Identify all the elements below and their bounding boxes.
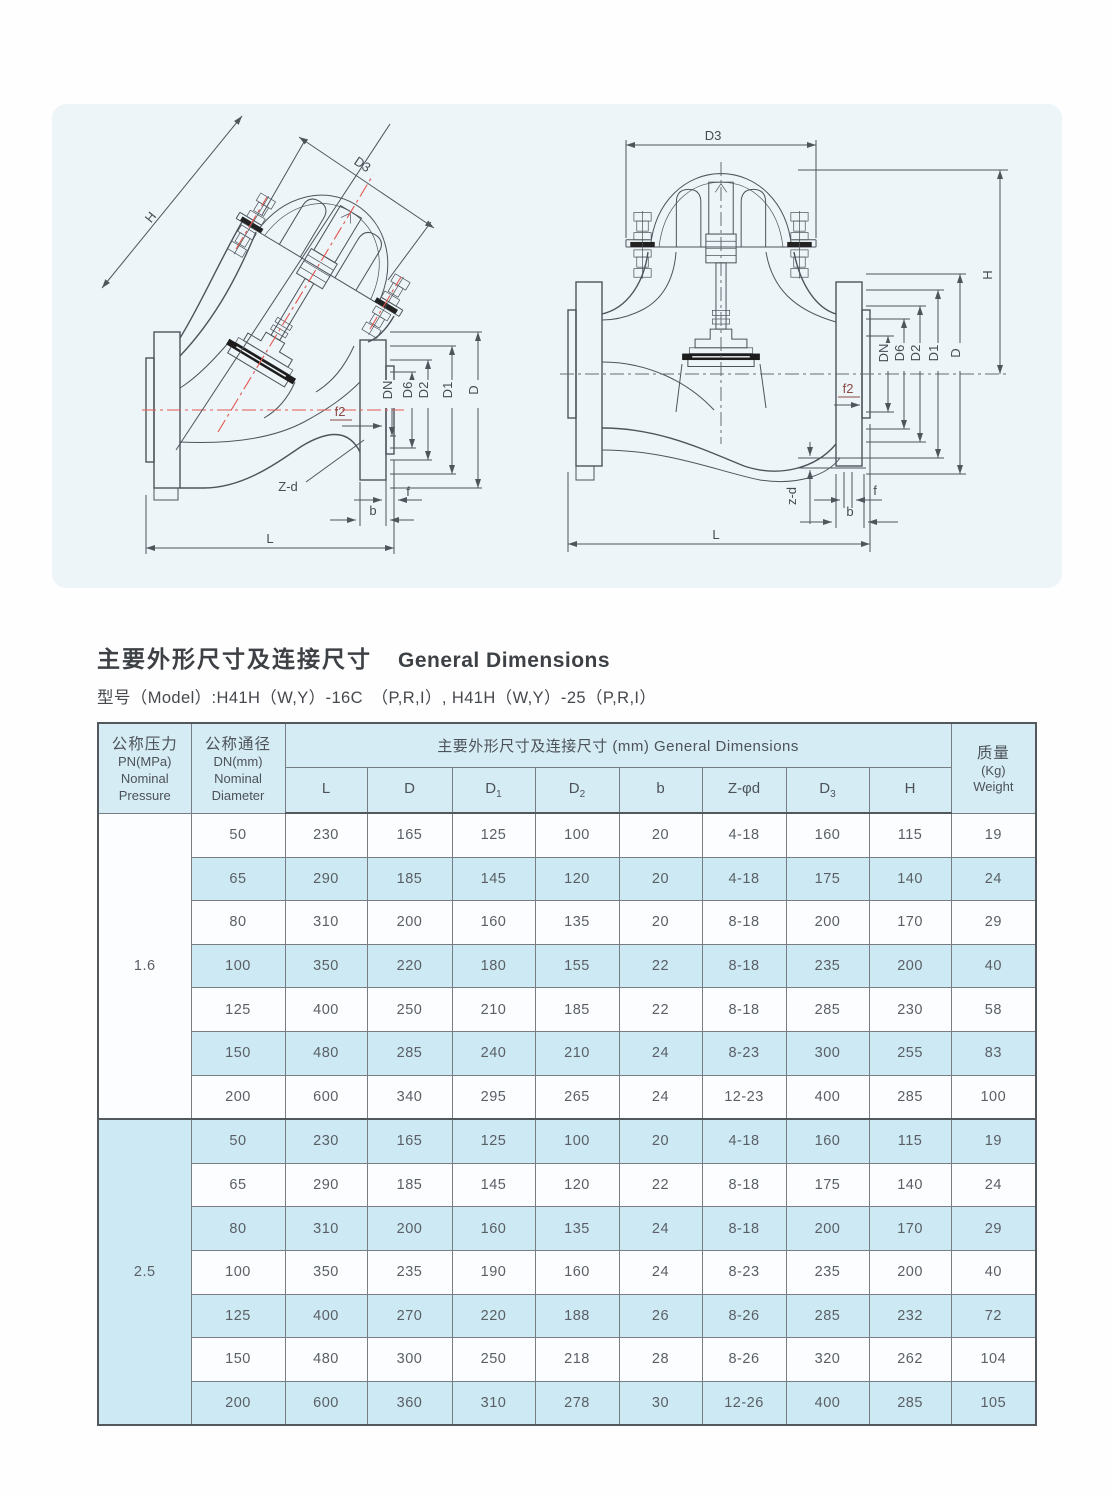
- col-header-H: H: [869, 767, 951, 813]
- dim-cell: 145: [452, 1163, 535, 1207]
- dim-cell: 250: [452, 1338, 535, 1382]
- dim-cell: 310: [285, 901, 367, 945]
- dim-cell: 310: [285, 1207, 367, 1251]
- weight-header-unit: (Kg): [952, 763, 1036, 780]
- weight-cell: 72: [951, 1294, 1036, 1338]
- dim-cell: 160: [786, 813, 869, 857]
- table-row: 2.550230165125100204-1816011519: [98, 1119, 1036, 1163]
- dim-cell: 185: [535, 988, 619, 1032]
- dn-header-zh: 公称通径: [192, 732, 285, 754]
- dim-cell: 8-18: [702, 1163, 786, 1207]
- weight-cell: 29: [951, 1207, 1036, 1251]
- y-valve-drawing: H D3 DN D6 D2 D1 D: [92, 110, 537, 585]
- dim-label-b: b: [369, 503, 376, 518]
- dim-cell: 125: [452, 813, 535, 857]
- dim-cell: 20: [619, 813, 702, 857]
- weight-cell: 29: [951, 901, 1036, 945]
- weight-cell: 19: [951, 813, 1036, 857]
- col-header-D3: D3: [786, 767, 869, 813]
- dn-cell: 100: [191, 944, 285, 988]
- dim-cell: 285: [869, 1075, 951, 1119]
- dim-label-h: H: [980, 270, 995, 279]
- dn-header-en1: Nominal: [192, 771, 285, 788]
- dim-label-f: f: [873, 483, 877, 498]
- table-row: 100350235190160248-2323520040: [98, 1250, 1036, 1294]
- dim-cell: 175: [786, 857, 869, 901]
- weight-cell: 83: [951, 1031, 1036, 1075]
- dim-cell: 250: [367, 988, 452, 1032]
- weight-header-zh: 质量: [952, 741, 1036, 763]
- col-header-zphid: Z-φd: [702, 767, 786, 813]
- dim-label-dn: DN: [380, 381, 395, 400]
- dim-cell: 185: [367, 857, 452, 901]
- dim-cell: 400: [786, 1381, 869, 1425]
- dim-label-d: D: [466, 385, 481, 394]
- dim-cell: 200: [869, 944, 951, 988]
- dim-cell: 100: [535, 813, 619, 857]
- dim-cell: 22: [619, 988, 702, 1032]
- dim-cell: 20: [619, 901, 702, 945]
- dim-cell: 190: [452, 1250, 535, 1294]
- dim-cell: 160: [535, 1250, 619, 1294]
- pn-header-zh: 公称压力: [99, 732, 191, 754]
- dim-label-l: L: [266, 531, 273, 546]
- dim-cell: 30: [619, 1381, 702, 1425]
- dim-cell: 290: [285, 857, 367, 901]
- straight-valve-drawing: D3 H DN D6 D2 D1: [548, 112, 1060, 574]
- dim-label-f2: f2: [335, 404, 346, 419]
- dim-cell: 165: [367, 1119, 452, 1163]
- col-header-b: b: [619, 767, 702, 813]
- dn-cell: 65: [191, 857, 285, 901]
- dim-cell: 160: [786, 1119, 869, 1163]
- table-row: 2006003603102783012-26400285105: [98, 1381, 1036, 1425]
- weight-cell: 104: [951, 1338, 1036, 1382]
- weight-cell: 24: [951, 1163, 1036, 1207]
- dim-cell: 170: [869, 1207, 951, 1251]
- dim-cell: 12-26: [702, 1381, 786, 1425]
- dim-label-d2: D2: [416, 382, 431, 399]
- dim-cell: 4-18: [702, 1119, 786, 1163]
- dim-cell: 8-18: [702, 988, 786, 1032]
- dim-label-dn: DN: [876, 344, 891, 363]
- model-line: 型号（Model）:H41H（W,Y）-16C （P,R,I）, H41H（W,…: [97, 684, 656, 708]
- col-header-D: D: [367, 767, 452, 813]
- dim-cell: 600: [285, 1381, 367, 1425]
- page-title-en: General Dimensions: [398, 649, 610, 672]
- dim-cell: 140: [869, 1163, 951, 1207]
- dn-cell: 65: [191, 1163, 285, 1207]
- dn-cell: 80: [191, 1207, 285, 1251]
- dim-label-b: b: [846, 504, 853, 519]
- catalog-page: H D3 DN D6 D2 D1 D: [0, 0, 1112, 1496]
- dim-cell: 265: [535, 1075, 619, 1119]
- dim-cell: 170: [869, 901, 951, 945]
- dim-cell: 115: [869, 813, 951, 857]
- weight-cell: 19: [951, 1119, 1036, 1163]
- dim-label-zd: Z-d: [278, 479, 298, 494]
- dim-cell: 100: [535, 1119, 619, 1163]
- col-header-D2: D2: [535, 767, 619, 813]
- dim-cell: 8-23: [702, 1250, 786, 1294]
- weight-cell: 24: [951, 857, 1036, 901]
- dim-cell: 400: [786, 1075, 869, 1119]
- col-header-D1: D1: [452, 767, 535, 813]
- table-body: 1.650230165125100204-1816011519652901851…: [98, 813, 1036, 1425]
- dim-cell: 24: [619, 1207, 702, 1251]
- table-row: 65290185145120228-1817514024: [98, 1163, 1036, 1207]
- dim-cell: 135: [535, 1207, 619, 1251]
- dim-cell: 400: [285, 988, 367, 1032]
- dim-cell: 300: [367, 1338, 452, 1382]
- dim-cell: 120: [535, 857, 619, 901]
- dim-cell: 255: [869, 1031, 951, 1075]
- dn-header-en2: Diameter: [192, 788, 285, 805]
- dim-cell: 340: [367, 1075, 452, 1119]
- dim-cell: 350: [285, 944, 367, 988]
- dim-cell: 24: [619, 1250, 702, 1294]
- dim-cell: 8-18: [702, 1207, 786, 1251]
- dim-label-f2: f2: [843, 381, 854, 396]
- dim-label-d2: D2: [908, 345, 923, 362]
- dim-cell: 140: [869, 857, 951, 901]
- dim-cell: 188: [535, 1294, 619, 1338]
- pn-header-unit: PN(MPa): [99, 754, 191, 771]
- dim-cell: 200: [786, 1207, 869, 1251]
- dim-cell: 175: [786, 1163, 869, 1207]
- dim-cell: 320: [786, 1338, 869, 1382]
- col-header-pn: 公称压力 PN(MPa) Nominal Pressure: [98, 723, 191, 813]
- dim-cell: 210: [535, 1031, 619, 1075]
- weight-cell: 105: [951, 1381, 1036, 1425]
- dim-cell: 220: [452, 1294, 535, 1338]
- dim-cell: 480: [285, 1338, 367, 1382]
- dim-cell: 4-18: [702, 813, 786, 857]
- table-row: 80310200160135208-1820017029: [98, 901, 1036, 945]
- dim-label-d6: D6: [400, 382, 415, 399]
- dim-cell: 200: [869, 1250, 951, 1294]
- dim-cell: 360: [367, 1381, 452, 1425]
- dn-cell: 150: [191, 1338, 285, 1382]
- dim-cell: 8-18: [702, 944, 786, 988]
- table-row: 125400250210185228-1828523058: [98, 988, 1036, 1032]
- dim-label-f: f: [406, 484, 410, 499]
- dn-cell: 125: [191, 1294, 285, 1338]
- dim-cell: 8-23: [702, 1031, 786, 1075]
- col-header-dimensions: 主要外形尺寸及连接尺寸 (mm) General Dimensions: [285, 723, 951, 767]
- dim-cell: 295: [452, 1075, 535, 1119]
- dim-cell: 210: [452, 988, 535, 1032]
- dim-cell: 235: [786, 1250, 869, 1294]
- dim-cell: 160: [452, 1207, 535, 1251]
- dim-label-d3: D3: [705, 128, 722, 143]
- pn-cell: 1.6: [98, 813, 191, 1119]
- dim-label-d1: D1: [926, 345, 941, 362]
- dim-cell: 285: [367, 1031, 452, 1075]
- dim-cell: 285: [786, 988, 869, 1032]
- dim-label-d6: D6: [892, 345, 907, 362]
- dim-cell: 232: [869, 1294, 951, 1338]
- dim-cell: 290: [285, 1163, 367, 1207]
- dim-cell: 480: [285, 1031, 367, 1075]
- dim-label-d1: D1: [440, 382, 455, 399]
- dn-cell: 150: [191, 1031, 285, 1075]
- weight-cell: 40: [951, 944, 1036, 988]
- dim-cell: 230: [285, 813, 367, 857]
- dim-cell: 145: [452, 857, 535, 901]
- col-header-weight: 质量 (Kg) Weight: [951, 723, 1036, 813]
- dn-header-unit: DN(mm): [192, 754, 285, 771]
- table-row: 150480285240210248-2330025583: [98, 1031, 1036, 1075]
- dim-label-d3: D3: [351, 153, 373, 175]
- table-row: 80310200160135248-1820017029: [98, 1207, 1036, 1251]
- dim-cell: 230: [285, 1119, 367, 1163]
- dim-cell: 220: [367, 944, 452, 988]
- dim-cell: 200: [786, 901, 869, 945]
- dn-cell: 200: [191, 1075, 285, 1119]
- dim-cell: 160: [452, 901, 535, 945]
- weight-header-en: Weight: [952, 779, 1036, 796]
- dn-cell: 100: [191, 1250, 285, 1294]
- dimensions-table: 公称压力 PN(MPa) Nominal Pressure 公称通径 DN(mm…: [97, 722, 1037, 1426]
- pn-header-en1: Nominal: [99, 771, 191, 788]
- dim-cell: 28: [619, 1338, 702, 1382]
- dim-cell: 115: [869, 1119, 951, 1163]
- dim-cell: 20: [619, 857, 702, 901]
- weight-cell: 100: [951, 1075, 1036, 1119]
- dim-cell: 22: [619, 944, 702, 988]
- col-header-dn: 公称通径 DN(mm) Nominal Diameter: [191, 723, 285, 813]
- dim-cell: 20: [619, 1119, 702, 1163]
- dim-cell: 155: [535, 944, 619, 988]
- table-row: 100350220180155228-1823520040: [98, 944, 1036, 988]
- dim-cell: 310: [452, 1381, 535, 1425]
- dim-cell: 8-18: [702, 901, 786, 945]
- dim-cell: 8-26: [702, 1338, 786, 1382]
- dn-cell: 125: [191, 988, 285, 1032]
- dim-cell: 270: [367, 1294, 452, 1338]
- dim-cell: 300: [786, 1031, 869, 1075]
- dim-cell: 12-23: [702, 1075, 786, 1119]
- page-title-zh: 主要外形尺寸及连接尺寸: [97, 646, 372, 672]
- dim-label-zd: z-d: [784, 487, 799, 505]
- table-row: 1.650230165125100204-1816011519: [98, 813, 1036, 857]
- dn-cell: 50: [191, 813, 285, 857]
- dim-label-d: D: [948, 348, 963, 357]
- dim-cell: 230: [869, 988, 951, 1032]
- table-row: 2006003402952652412-23400285100: [98, 1075, 1036, 1119]
- dim-cell: 240: [452, 1031, 535, 1075]
- dim-cell: 285: [869, 1381, 951, 1425]
- weight-cell: 58: [951, 988, 1036, 1032]
- table-row: 150480300250218288-26320262104: [98, 1338, 1036, 1382]
- dn-cell: 50: [191, 1119, 285, 1163]
- dim-cell: 285: [786, 1294, 869, 1338]
- weight-cell: 40: [951, 1250, 1036, 1294]
- table-row: 65290185145120204-1817514024: [98, 857, 1036, 901]
- dn-cell: 80: [191, 901, 285, 945]
- dim-cell: 600: [285, 1075, 367, 1119]
- col-header-L: L: [285, 767, 367, 813]
- dim-cell: 200: [367, 1207, 452, 1251]
- dim-cell: 22: [619, 1163, 702, 1207]
- dim-label-h: H: [142, 209, 160, 226]
- pn-header-en2: Pressure: [99, 788, 191, 805]
- dim-cell: 218: [535, 1338, 619, 1382]
- dim-cell: 24: [619, 1075, 702, 1119]
- header-row-1: 公称压力 PN(MPa) Nominal Pressure 公称通径 DN(mm…: [98, 723, 1036, 767]
- dim-cell: 180: [452, 944, 535, 988]
- dim-cell: 4-18: [702, 857, 786, 901]
- section-title: 主要外形尺寸及连接尺寸General Dimensions: [97, 640, 610, 674]
- dim-cell: 278: [535, 1381, 619, 1425]
- dim-cell: 24: [619, 1031, 702, 1075]
- dn-cell: 200: [191, 1381, 285, 1425]
- dim-cell: 8-26: [702, 1294, 786, 1338]
- dim-cell: 125: [452, 1119, 535, 1163]
- dim-cell: 235: [367, 1250, 452, 1294]
- dim-cell: 400: [285, 1294, 367, 1338]
- pn-cell: 2.5: [98, 1119, 191, 1425]
- dim-cell: 135: [535, 901, 619, 945]
- dim-label-l: L: [712, 527, 719, 542]
- dim-cell: 185: [367, 1163, 452, 1207]
- dim-cell: 235: [786, 944, 869, 988]
- table-row: 125400270220188268-2628523272: [98, 1294, 1036, 1338]
- dim-cell: 350: [285, 1250, 367, 1294]
- dim-cell: 120: [535, 1163, 619, 1207]
- dim-cell: 165: [367, 813, 452, 857]
- dim-cell: 262: [869, 1338, 951, 1382]
- dim-cell: 26: [619, 1294, 702, 1338]
- dim-cell: 200: [367, 901, 452, 945]
